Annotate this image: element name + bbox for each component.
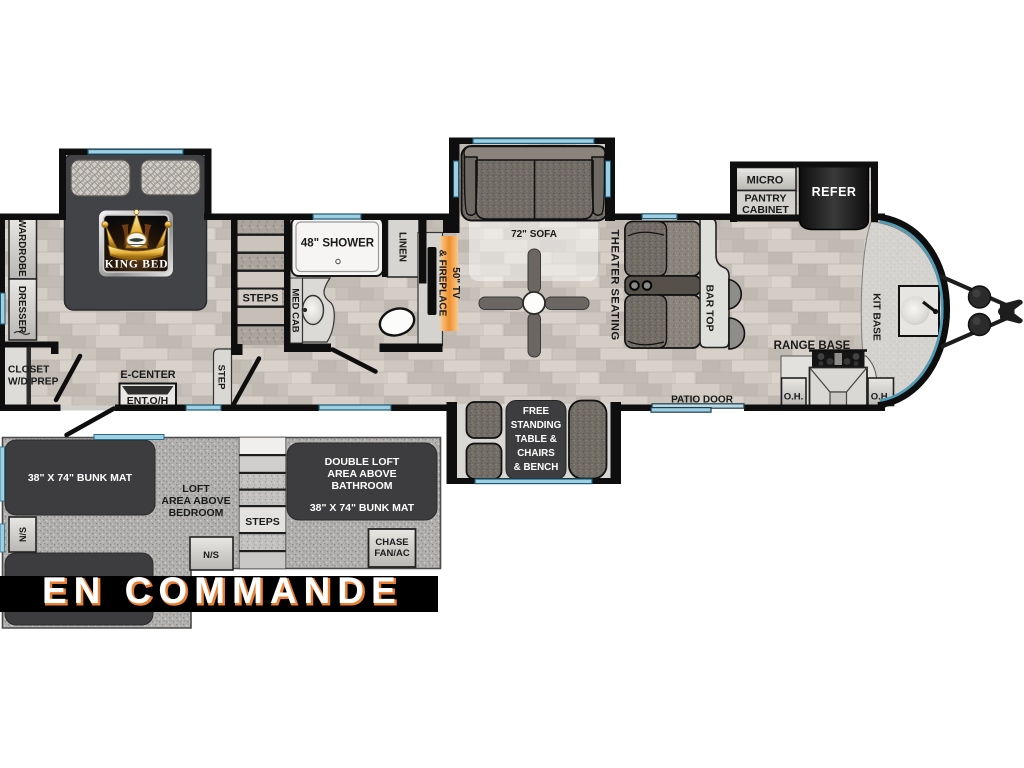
svg-text:PATIO DOOR: PATIO DOOR — [671, 395, 734, 406]
svg-text:BATHROOM: BATHROOM — [331, 480, 392, 492]
svg-text:MED CAB: MED CAB — [290, 288, 301, 332]
svg-text:50" TV: 50" TV — [450, 267, 461, 299]
svg-text:DRESSER: DRESSER — [16, 286, 27, 333]
svg-text:BAR TOP: BAR TOP — [704, 284, 716, 331]
svg-text:38" X 74" BUNK MAT: 38" X 74" BUNK MAT — [28, 472, 133, 484]
svg-text:W/D PREP: W/D PREP — [8, 377, 59, 388]
svg-text:LINEN: LINEN — [397, 232, 408, 262]
svg-text:STANDING: STANDING — [511, 420, 562, 431]
svg-text:FAN/AC: FAN/AC — [374, 548, 410, 559]
svg-text:FREE: FREE — [523, 406, 550, 417]
svg-text:THEATER SEATING: THEATER SEATING — [609, 229, 621, 340]
svg-text:STEPS: STEPS — [242, 293, 278, 305]
svg-text:N/S: N/S — [18, 527, 28, 542]
svg-text:N/S: N/S — [203, 550, 219, 561]
svg-text:O.H.: O.H. — [784, 392, 804, 403]
svg-text:E-CENTER: E-CENTER — [120, 369, 175, 381]
svg-text:STEPS: STEPS — [245, 516, 279, 528]
svg-text:DOUBLE LOFT: DOUBLE LOFT — [325, 456, 400, 468]
svg-text:RANGE BASE: RANGE BASE — [774, 340, 851, 352]
svg-text:AREA ABOVE: AREA ABOVE — [327, 468, 396, 480]
svg-text:CLOSET: CLOSET — [8, 365, 50, 376]
svg-text:KING BED: KING BED — [105, 259, 169, 271]
svg-text:LOFT: LOFT — [182, 483, 210, 495]
svg-text:BEDROOM: BEDROOM — [169, 507, 224, 519]
svg-text:AREA ABOVE: AREA ABOVE — [161, 495, 230, 507]
svg-text:CABINET: CABINET — [742, 204, 789, 216]
svg-text:STEP: STEP — [216, 365, 227, 390]
svg-text:& FIREPLACE: & FIREPLACE — [437, 250, 448, 317]
svg-text:CHAIRS: CHAIRS — [517, 448, 555, 459]
svg-text:EN COMMANDE: EN COMMANDE — [42, 570, 403, 611]
svg-text:MICRO: MICRO — [747, 175, 784, 187]
svg-text:KIT BASE: KIT BASE — [871, 293, 882, 341]
svg-text:PANTRY: PANTRY — [745, 193, 787, 205]
svg-text:CHASE: CHASE — [375, 537, 408, 548]
svg-text:& BENCH: & BENCH — [514, 462, 559, 473]
svg-text:TABLE &: TABLE & — [515, 434, 557, 445]
svg-text:WARDROBE: WARDROBE — [16, 218, 27, 277]
svg-text:72" SOFA: 72" SOFA — [511, 229, 557, 240]
svg-text:REFER: REFER — [812, 185, 857, 199]
svg-text:38" X 74" BUNK MAT: 38" X 74" BUNK MAT — [310, 502, 415, 514]
svg-text:48" SHOWER: 48" SHOWER — [301, 238, 375, 250]
